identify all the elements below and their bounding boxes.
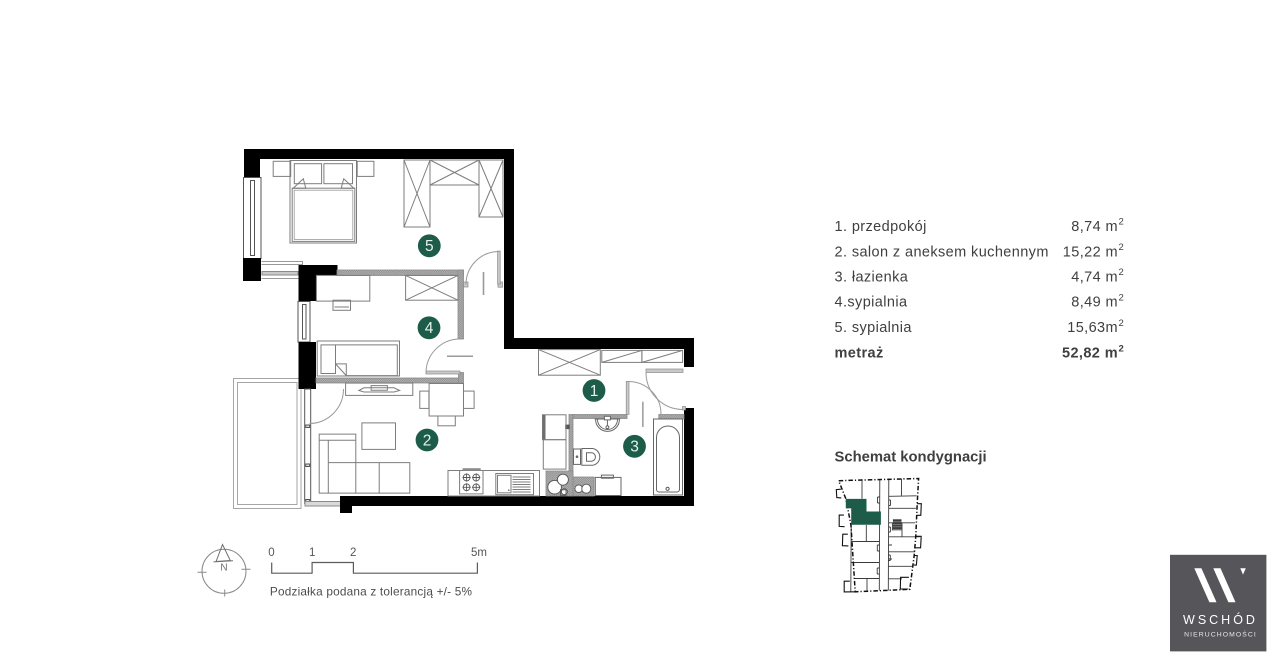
- svg-text:3: 3: [630, 439, 639, 456]
- svg-text:0: 0: [268, 547, 274, 559]
- svg-text:2: 2: [1119, 242, 1125, 253]
- svg-text:N: N: [220, 563, 227, 574]
- svg-text:4.sypialnia: 4.sypialnia: [835, 295, 908, 311]
- svg-text:52,82 m: 52,82 m: [1062, 346, 1118, 362]
- svg-text:2: 2: [1119, 343, 1125, 354]
- svg-text:Podziałka podana z tolerancją: Podziałka podana z tolerancją +/- 5%: [270, 585, 473, 599]
- svg-text:1: 1: [309, 547, 315, 559]
- svg-text:5m: 5m: [471, 547, 487, 559]
- svg-text:15,22 m: 15,22 m: [1063, 244, 1118, 260]
- svg-text:1. przedpokój: 1. przedpokój: [835, 219, 927, 235]
- svg-text:Schemat kondygnacji: Schemat kondygnacji: [835, 450, 987, 466]
- svg-text:WSCHÓD: WSCHÓD: [1183, 612, 1258, 627]
- svg-text:metraż: metraż: [835, 346, 884, 362]
- svg-text:8,74 m: 8,74 m: [1071, 219, 1118, 235]
- svg-text:5. sypialnia: 5. sypialnia: [835, 320, 913, 336]
- svg-text:2: 2: [423, 432, 432, 449]
- svg-text:2: 2: [1119, 292, 1125, 303]
- svg-text:2: 2: [1119, 318, 1125, 329]
- svg-text:2: 2: [1119, 217, 1125, 228]
- svg-text:2: 2: [1119, 267, 1125, 278]
- svg-text:4,74 m: 4,74 m: [1071, 270, 1118, 286]
- svg-text:1: 1: [590, 383, 599, 400]
- svg-text:8,49 m: 8,49 m: [1071, 295, 1118, 311]
- svg-text:4: 4: [425, 320, 434, 337]
- svg-text:NIERUCHOMOŚCI: NIERUCHOMOŚCI: [1184, 630, 1257, 639]
- svg-text:2. salon z aneksem kuchennym: 2. salon z aneksem kuchennym: [835, 244, 1049, 260]
- svg-text:15,63m: 15,63m: [1067, 320, 1118, 336]
- svg-text:5: 5: [425, 238, 434, 255]
- svg-text:3. łazienka: 3. łazienka: [835, 270, 909, 286]
- svg-text:2: 2: [350, 547, 356, 559]
